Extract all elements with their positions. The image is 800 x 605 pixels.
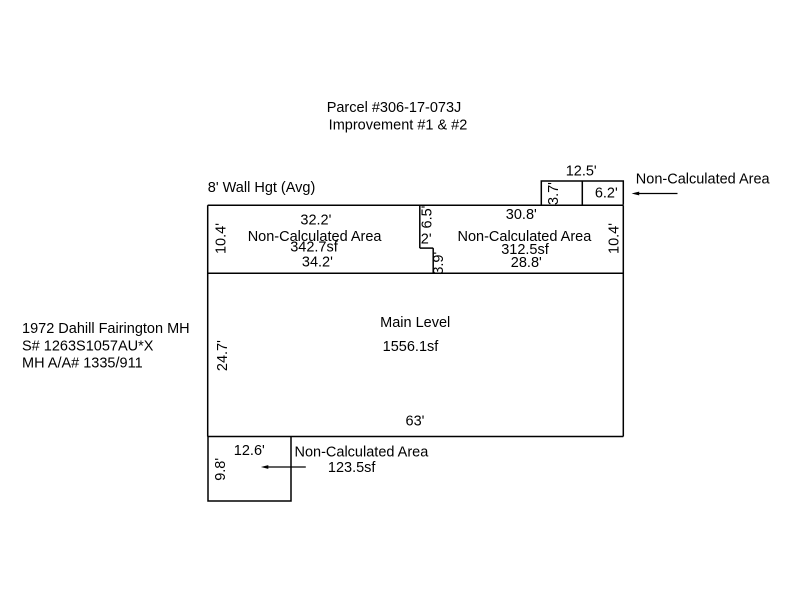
svg-text:1556.1sf: 1556.1sf — [383, 339, 440, 355]
svg-text:Non-Calculated Area: Non-Calculated Area — [295, 444, 430, 460]
svg-text:MH A/A# 1335/911: MH A/A# 1335/911 — [22, 356, 143, 372]
svg-text:9.8': 9.8' — [213, 458, 229, 481]
svg-text:34.2': 34.2' — [302, 255, 333, 271]
svg-text:6.2': 6.2' — [595, 186, 618, 202]
svg-text:342.7sf: 342.7sf — [290, 240, 339, 256]
svg-text:3.9': 3.9' — [431, 252, 447, 275]
svg-text:12.6': 12.6' — [234, 443, 265, 459]
svg-text:123.5sf: 123.5sf — [328, 460, 377, 476]
svg-text:Non-Calculated Area: Non-Calculated Area — [636, 171, 771, 187]
svg-text:28.8': 28.8' — [511, 255, 542, 271]
svg-text:S# 1263S1057AU*X: S# 1263S1057AU*X — [22, 339, 154, 355]
svg-text:30.8': 30.8' — [506, 207, 537, 223]
svg-text:12.5': 12.5' — [566, 163, 597, 179]
svg-text:1972 Dahill Fairington MH: 1972 Dahill Fairington MH — [22, 321, 190, 337]
svg-text:Main Level: Main Level — [380, 315, 450, 331]
svg-text:Parcel #306-17-073J: Parcel #306-17-073J — [327, 100, 462, 116]
svg-text:Improvement #1 & #2: Improvement #1 & #2 — [329, 118, 468, 134]
svg-text:6.5': 6.5' — [419, 205, 435, 228]
svg-text:8' Wall Hgt (Avg): 8' Wall Hgt (Avg) — [208, 180, 316, 196]
svg-text:63': 63' — [406, 414, 425, 430]
svg-text:3.7': 3.7' — [546, 182, 562, 205]
svg-text:32.2': 32.2' — [300, 212, 331, 228]
svg-text:2': 2' — [421, 232, 432, 248]
svg-text:10.4': 10.4' — [213, 223, 229, 254]
svg-text:10.4': 10.4' — [607, 223, 623, 254]
svg-text:24.7': 24.7' — [215, 340, 231, 371]
